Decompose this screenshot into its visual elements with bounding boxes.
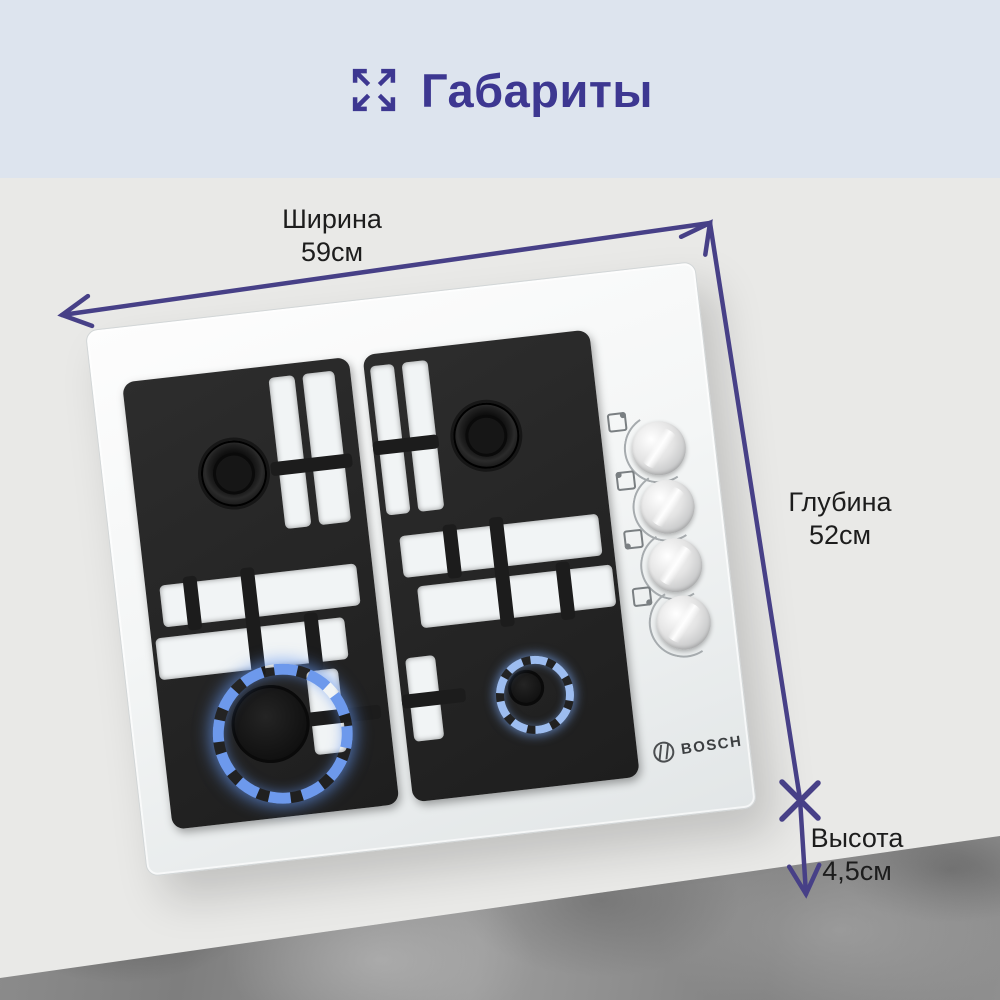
position-dot [620, 412, 627, 419]
control-knob-1 [629, 418, 689, 478]
depth-label: Глубина [740, 486, 940, 519]
product-dimensions-infographic: Габариты [0, 0, 1000, 1000]
grate-panel-right [362, 329, 639, 802]
depth-value: 52см [740, 519, 940, 552]
burner-position-icon [632, 586, 653, 607]
brand-logo: BOSCH [652, 731, 744, 764]
burner-position-icon [615, 470, 636, 491]
burner-position-icon [607, 412, 628, 433]
bosch-emblem-icon [652, 740, 676, 764]
control-knob-2 [638, 477, 698, 537]
width-label: Ширина [232, 203, 432, 236]
height-value: 4,5см [757, 855, 957, 888]
control-knob-4 [654, 593, 714, 653]
width-dimension-label: Ширина 59см [232, 203, 432, 269]
position-dot [646, 599, 653, 606]
width-arrowhead-right [681, 223, 710, 255]
expand-arrows-icon [347, 63, 401, 117]
width-value: 59см [232, 236, 432, 269]
depth-dimension-label: Глубина 52см [740, 486, 940, 552]
burner-position-icon [623, 529, 644, 550]
height-label: Высота [757, 822, 957, 855]
banner-content: Габариты [347, 63, 653, 118]
brand-name: BOSCH [680, 733, 743, 758]
height-dimension-label: Высота 4,5см [757, 822, 957, 888]
page-title: Габариты [421, 63, 653, 118]
surface-level-x-mark [782, 782, 818, 819]
gas-hob: BOSCH [85, 261, 757, 877]
position-dot [615, 472, 622, 479]
control-knob-3 [645, 535, 705, 595]
width-arrowhead-left [62, 296, 92, 326]
grate-cutout [302, 371, 351, 526]
header-banner: Габариты [0, 0, 1000, 178]
position-dot [624, 543, 631, 550]
